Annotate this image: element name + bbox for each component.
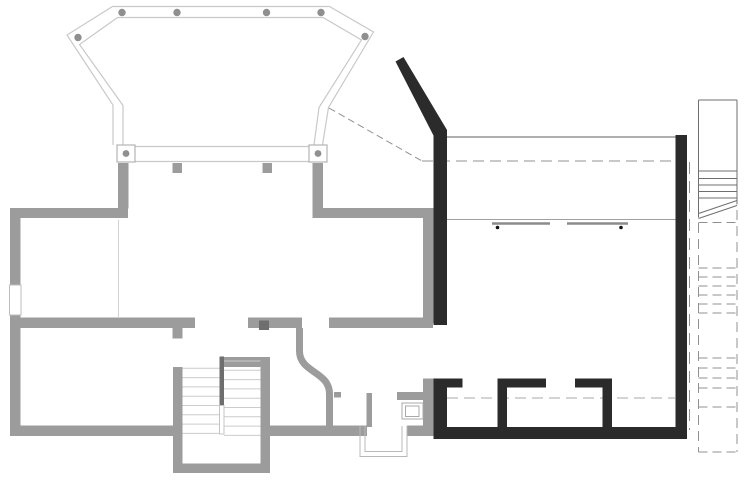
wall-deck-return-right <box>313 163 324 209</box>
entry-steps-inner <box>365 426 402 452</box>
deck-column <box>173 9 180 16</box>
wall-interior-a-stub <box>173 328 183 339</box>
wall-bottom-mid <box>270 426 367 437</box>
roof-edge-dashed-diagonal <box>329 108 422 161</box>
wall-core-upper <box>423 212 434 323</box>
wall-stair-bottom <box>173 464 270 474</box>
wall-deck-return-left <box>118 163 129 209</box>
deck-column <box>361 33 368 40</box>
new-wall-right <box>676 135 688 439</box>
deck-post-column <box>123 150 130 157</box>
wall-top-right <box>313 208 434 218</box>
wall-curved <box>300 328 330 426</box>
wall-stair-left <box>173 367 183 473</box>
wall-bath-left <box>367 393 373 427</box>
window-left <box>10 285 22 315</box>
new-wall-closet-b-stub <box>498 379 508 428</box>
wall-core-lower <box>423 379 434 428</box>
new-wall-closet-a <box>434 379 463 388</box>
wall-bottom-left <box>10 426 173 437</box>
wall-interior-b <box>248 318 302 329</box>
floor-plan-drawing <box>0 0 750 487</box>
glass-pier <box>263 163 273 173</box>
new-wall-closet-c-stub <box>603 379 613 428</box>
wall-top-left <box>10 208 128 218</box>
wall-stair-right <box>261 357 271 473</box>
floor-plan-canvas <box>0 0 750 487</box>
deck-column <box>263 9 270 16</box>
wall-interior-c <box>329 318 433 329</box>
glass-pier <box>173 163 183 173</box>
deck-column <box>317 9 324 16</box>
deck-column <box>118 9 125 16</box>
sink-basin <box>406 406 420 417</box>
wall-interior-a <box>10 318 195 329</box>
new-wall-bottom <box>434 427 688 439</box>
new-wall-left-upper <box>434 130 448 325</box>
panel-pivot-dot <box>619 226 623 230</box>
stair-railing <box>220 406 225 435</box>
deck-post-column <box>315 150 322 157</box>
deck-inner-outline <box>80 18 362 146</box>
wall-curve-stub <box>334 392 341 398</box>
panel-pivot-dot <box>496 226 500 230</box>
deck-outer-outline <box>67 7 374 146</box>
deck-column <box>74 34 81 41</box>
stair-divider-wall <box>220 357 225 406</box>
door-jamb-tick <box>259 321 269 331</box>
wall-bath-top <box>397 392 423 400</box>
new-wall-diagonal <box>396 57 448 138</box>
